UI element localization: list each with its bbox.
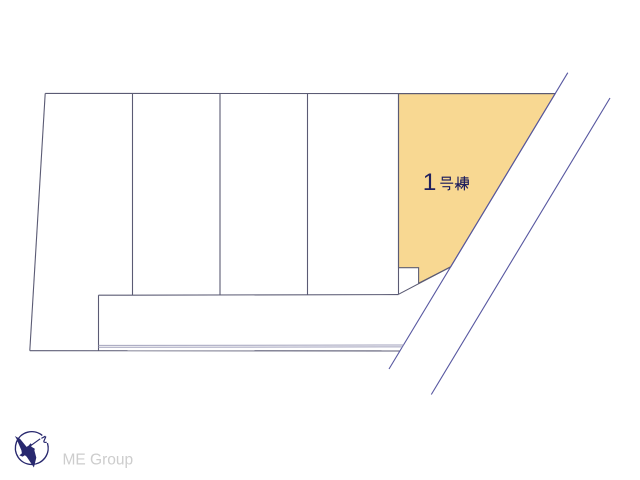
svg-text:1: 1	[423, 169, 437, 196]
svg-text:ME Group: ME Group	[63, 451, 134, 468]
